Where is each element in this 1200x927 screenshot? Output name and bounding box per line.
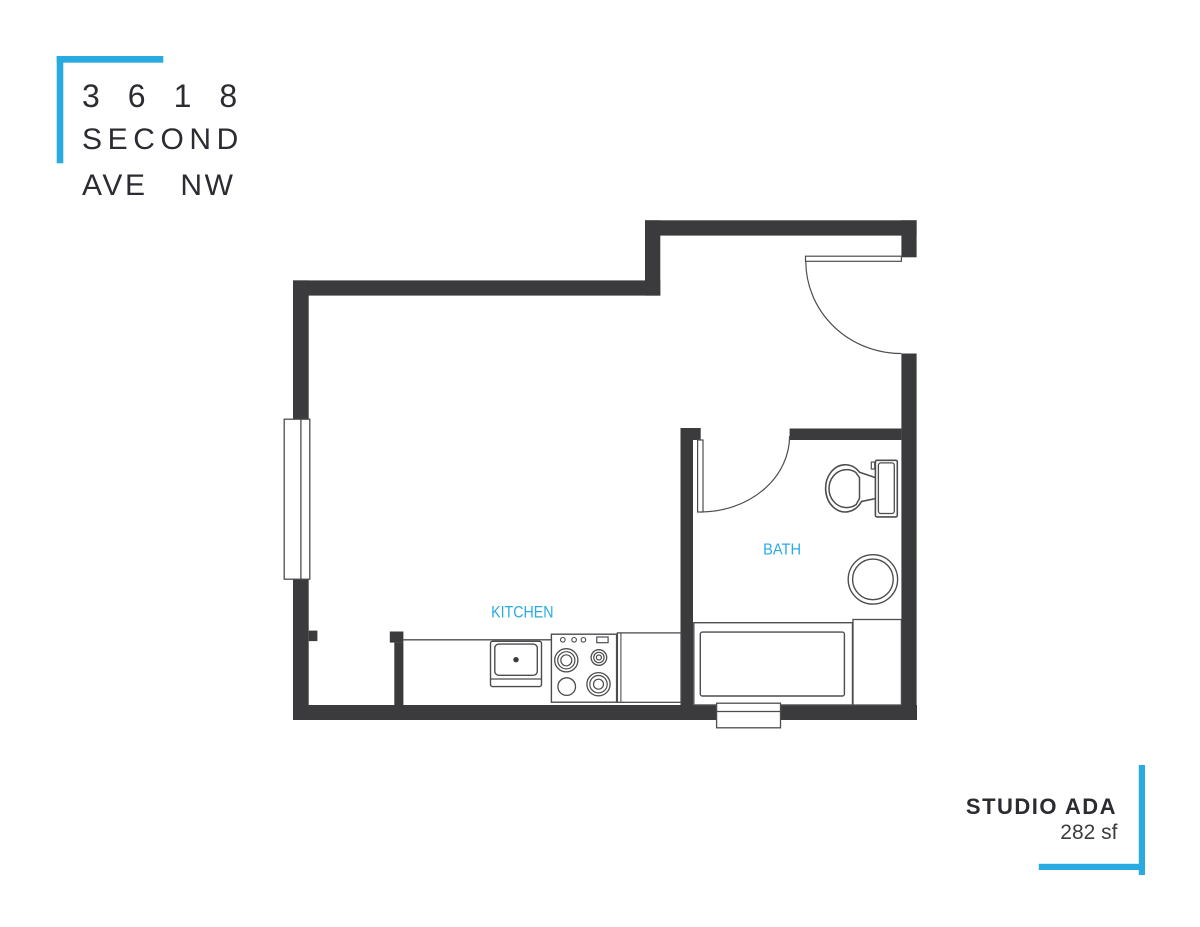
svg-text:BATH: BATH <box>763 542 801 559</box>
svg-text:KITCHEN: KITCHEN <box>491 603 553 621</box>
